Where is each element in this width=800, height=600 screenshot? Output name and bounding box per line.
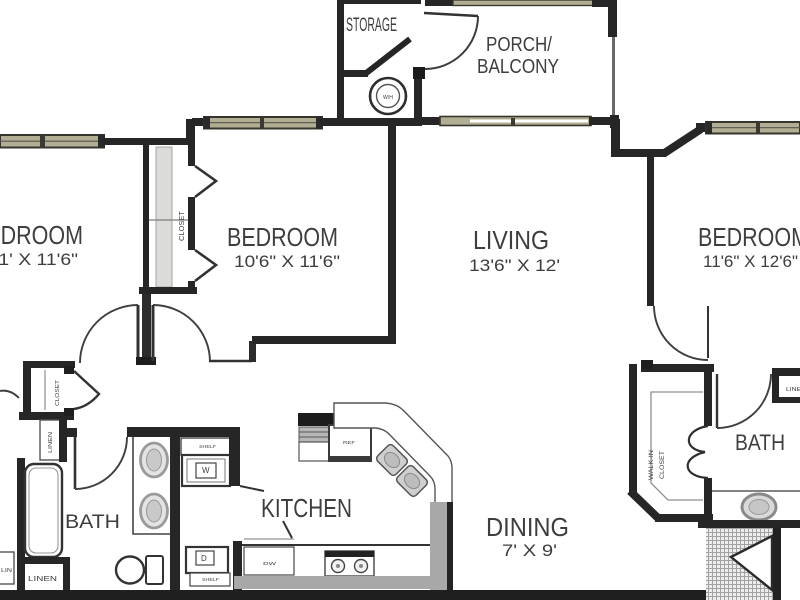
svg-text:LIN: LIN [1, 568, 13, 574]
svg-text:11'6" X 12'6": 11'6" X 12'6" [703, 252, 798, 271]
svg-text:LIVING: LIVING [473, 225, 549, 255]
svg-text:W/H: W/H [383, 95, 393, 101]
svg-text:13'6" X 12': 13'6" X 12' [469, 256, 560, 275]
svg-text:11' X 11'6": 11' X 11'6" [0, 250, 78, 269]
svg-text:LINEN: LINEN [48, 432, 54, 453]
svg-text:REF: REF [343, 440, 355, 445]
svg-text:SHELF: SHELF [202, 577, 219, 582]
svg-text:D: D [201, 554, 207, 563]
svg-text:KITCHEN: KITCHEN [261, 493, 352, 523]
svg-text:LINEN: LINEN [786, 387, 800, 393]
svg-text:LINEN: LINEN [28, 576, 57, 583]
svg-text:WALK-IN: WALK-IN [648, 450, 655, 480]
svg-text:DW: DW [263, 561, 277, 566]
svg-text:7' X 9': 7' X 9' [502, 541, 557, 560]
svg-text:CLOSET: CLOSET [179, 210, 186, 241]
svg-text:BEDROOM: BEDROOM [0, 220, 83, 250]
svg-text:BATH: BATH [65, 512, 120, 533]
svg-text:CLOSET: CLOSET [659, 451, 666, 479]
svg-text:BATH: BATH [735, 430, 785, 455]
svg-text:BEDROOM: BEDROOM [227, 222, 338, 252]
svg-text:SHELF: SHELF [199, 444, 216, 449]
svg-text:PORCH/: PORCH/ [486, 34, 552, 56]
svg-text:BEDROOM: BEDROOM [698, 222, 800, 252]
svg-text:DINING: DINING [486, 512, 569, 542]
svg-text:STORAGE: STORAGE [346, 15, 397, 36]
svg-text:CLOSET: CLOSET [55, 379, 61, 406]
svg-text:W: W [202, 466, 210, 475]
svg-text:BALCONY: BALCONY [477, 56, 559, 78]
svg-text:10'6" X 11'6": 10'6" X 11'6" [234, 252, 340, 271]
